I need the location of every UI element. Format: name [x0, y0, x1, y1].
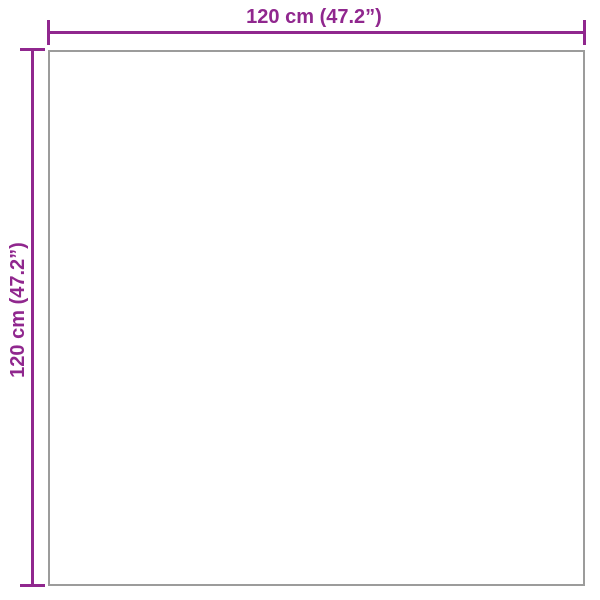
width-dimension-label: 120 cm (47.2”): [246, 7, 382, 27]
height-dimension-bottom-end-tick: [20, 584, 45, 587]
product-outline: [48, 50, 585, 586]
height-dimension-top-end-tick: [20, 48, 45, 51]
width-dimension-left-end-tick: [47, 20, 50, 45]
height-dimension-line: [31, 49, 34, 586]
width-dimension-line: [48, 31, 585, 34]
dimension-diagram: 120 cm (47.2”) 120 cm (47.2”): [0, 0, 600, 600]
width-dimension-right-end-tick: [583, 20, 586, 45]
height-dimension-label: 120 cm (47.2”): [8, 242, 28, 378]
